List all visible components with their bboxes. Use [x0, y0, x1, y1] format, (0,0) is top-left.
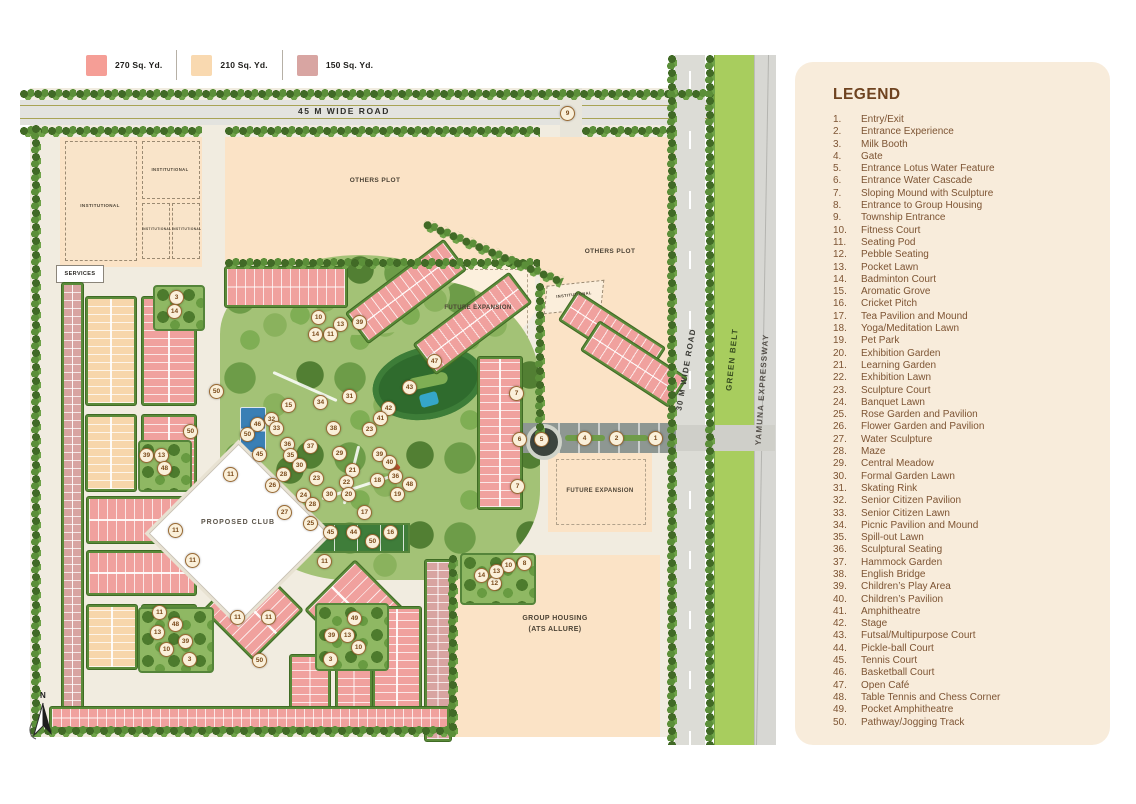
map-marker: 11: [185, 553, 200, 568]
legend-item-number: 11.: [833, 237, 861, 249]
plot-size-legend-item: 150 Sq. Yd.: [282, 50, 387, 80]
legend-item-label: Entry/Exit: [861, 114, 1098, 126]
site-plan-page: 270 Sq. Yd. 210 Sq. Yd. 150 Sq. Yd. 45 M…: [0, 0, 1136, 804]
map-marker: 11: [261, 610, 276, 625]
legend-item: 35. Spill-out Lawn: [833, 532, 1098, 544]
legend-item-number: 9.: [833, 212, 861, 224]
plot-size-swatch: [191, 55, 212, 76]
map-marker: 34: [313, 395, 328, 410]
legend-list: 1. Entry/Exit 2. Entrance Experience 3. …: [795, 114, 1110, 729]
legend-item: 24. Banquet Lawn: [833, 397, 1098, 409]
legend-item-label: Aromatic Grove: [861, 286, 1098, 298]
legend-item-label: Pocket Lawn: [861, 262, 1098, 274]
map-marker: 27: [277, 505, 292, 520]
legend-item-number: 31.: [833, 483, 861, 495]
legend-panel: LEGEND 1. Entry/Exit 2. Entrance Experie…: [795, 62, 1110, 745]
legend-item-label: Entrance to Group Housing: [861, 200, 1098, 212]
map-marker: 3: [169, 290, 184, 305]
plot-size-legend-item: 270 Sq. Yd.: [86, 50, 176, 80]
map-marker: 25: [303, 516, 318, 531]
legend-item-number: 41.: [833, 606, 861, 618]
legend-item-label: Milk Booth: [861, 139, 1098, 151]
plot-size-swatch: [86, 55, 107, 76]
legend-item-number: 45.: [833, 655, 861, 667]
legend-item: 47. Open Café: [833, 680, 1098, 692]
legend-item-label: Skating Rink: [861, 483, 1098, 495]
legend-item: 2. Entrance Experience: [833, 126, 1098, 138]
plot-size-legend-item: 210 Sq. Yd.: [176, 50, 281, 80]
legend-item-label: Basketball Court: [861, 667, 1098, 679]
map-marker: 7: [510, 479, 525, 494]
legend-item-label: Formal Garden Lawn: [861, 471, 1098, 483]
map-marker: 11: [223, 467, 238, 482]
map-marker: 11: [230, 610, 245, 625]
legend-item: 7. Sloping Mound with Sculpture: [833, 188, 1098, 200]
map-marker: 44: [346, 525, 361, 540]
plot-size-label: 150 Sq. Yd.: [326, 60, 373, 70]
legend-item: 22. Exhibition Lawn: [833, 372, 1098, 384]
legend-item: 34. Picnic Pavilion and Mound: [833, 520, 1098, 532]
map-marker: 16: [383, 525, 398, 540]
map-marker: 14: [308, 327, 323, 342]
legend-item: 11. Seating Pod: [833, 237, 1098, 249]
map-marker: 43: [402, 380, 417, 395]
legend-item-number: 17.: [833, 311, 861, 323]
legend-item-label: Badminton Court: [861, 274, 1098, 286]
legend-item-number: 14.: [833, 274, 861, 286]
legend-item-label: Sculptural Seating: [861, 544, 1098, 556]
legend-item: 26. Flower Garden and Pavilion: [833, 421, 1098, 433]
marker-layer: 1245677981012131410133911144743424131341…: [20, 55, 775, 745]
legend-item-label: Futsal/Multipurpose Court: [861, 630, 1098, 642]
map-marker: 15: [281, 398, 296, 413]
legend-item-number: 40.: [833, 594, 861, 606]
plot-size-swatch: [297, 55, 318, 76]
legend-item: 38. English Bridge: [833, 569, 1098, 581]
map-marker: 5: [534, 432, 549, 447]
map-marker: 31: [342, 389, 357, 404]
legend-item-number: 25.: [833, 409, 861, 421]
map-marker: 37: [303, 439, 318, 454]
legend-item: 5. Entrance Lotus Water Feature: [833, 163, 1098, 175]
legend-item-number: 26.: [833, 421, 861, 433]
legend-item: 18. Yoga/Meditation Lawn: [833, 323, 1098, 335]
master-plan-map: 45 M WIDE ROAD 30 M WIDE ROAD GREEN BELT…: [20, 55, 775, 745]
legend-item-number: 23.: [833, 385, 861, 397]
legend-item: 50. Pathway/Jogging Track: [833, 717, 1098, 729]
legend-item-number: 1.: [833, 114, 861, 126]
map-marker: 23: [309, 471, 324, 486]
legend-item-number: 21.: [833, 360, 861, 372]
map-marker: 29: [332, 446, 347, 461]
map-marker: 50: [183, 424, 198, 439]
map-marker: 6: [512, 432, 527, 447]
legend-item: 12. Pebble Seating: [833, 249, 1098, 261]
map-marker: 28: [305, 497, 320, 512]
legend-item-label: Rose Garden and Pavilion: [861, 409, 1098, 421]
map-marker: 4: [577, 431, 592, 446]
legend-item: 45. Tennis Court: [833, 655, 1098, 667]
legend-item-label: Pet Park: [861, 335, 1098, 347]
map-marker: 50: [209, 384, 224, 399]
legend-item-label: Spill-out Lawn: [861, 532, 1098, 544]
legend-item-number: 29.: [833, 458, 861, 470]
legend-item-label: Fitness Court: [861, 225, 1098, 237]
legend-item-label: Pickle-ball Court: [861, 643, 1098, 655]
legend-item-number: 8.: [833, 200, 861, 212]
legend-item-label: Entrance Experience: [861, 126, 1098, 138]
map-marker: 39: [352, 315, 367, 330]
map-marker: 33: [269, 421, 284, 436]
legend-item: 43. Futsal/Multipurpose Court: [833, 630, 1098, 642]
plot-size-label: 270 Sq. Yd.: [115, 60, 162, 70]
map-marker: 14: [474, 568, 489, 583]
legend-item-number: 22.: [833, 372, 861, 384]
map-marker: 3: [323, 652, 338, 667]
legend-item-number: 37.: [833, 557, 861, 569]
map-marker: 17: [357, 505, 372, 520]
map-marker: 10: [311, 310, 326, 325]
map-marker: 48: [157, 461, 172, 476]
legend-item: 10. Fitness Court: [833, 225, 1098, 237]
map-marker: 10: [351, 640, 366, 655]
map-marker: 18: [370, 473, 385, 488]
legend-item-number: 10.: [833, 225, 861, 237]
legend-item-number: 5.: [833, 163, 861, 175]
legend-item: 19. Pet Park: [833, 335, 1098, 347]
legend-item-number: 50.: [833, 717, 861, 729]
map-marker: 19: [390, 487, 405, 502]
legend-item-label: Sculpture Court: [861, 385, 1098, 397]
map-marker: 13: [150, 625, 165, 640]
legend-item-label: Tea Pavilion and Mound: [861, 311, 1098, 323]
map-marker: 49: [347, 611, 362, 626]
compass-arrow-icon: [24, 693, 64, 743]
legend-item-number: 48.: [833, 692, 861, 704]
map-marker: 7: [509, 386, 524, 401]
legend-item: 32. Senior Citizen Pavilion: [833, 495, 1098, 507]
legend-item: 49. Pocket Amphitheatre: [833, 704, 1098, 716]
legend-item-label: Central Meadow: [861, 458, 1098, 470]
legend-item-label: Township Entrance: [861, 212, 1098, 224]
legend-item-number: 12.: [833, 249, 861, 261]
legend-item: 15. Aromatic Grove: [833, 286, 1098, 298]
map-marker: 10: [159, 642, 174, 657]
map-marker: 8: [517, 556, 532, 571]
legend-item: 28. Maze: [833, 446, 1098, 458]
legend-item-number: 27.: [833, 434, 861, 446]
map-marker: 47: [427, 354, 442, 369]
map-marker: 9: [560, 106, 575, 121]
legend-item: 30. Formal Garden Lawn: [833, 471, 1098, 483]
legend-item-label: Senior Citizen Lawn: [861, 508, 1098, 520]
legend-item-number: 46.: [833, 667, 861, 679]
legend-item-number: 30.: [833, 471, 861, 483]
map-marker: 50: [252, 653, 267, 668]
map-marker: 40: [382, 455, 397, 470]
legend-item-label: Gate: [861, 151, 1098, 163]
legend-item-label: Pebble Seating: [861, 249, 1098, 261]
legend-item-number: 6.: [833, 175, 861, 187]
legend-item-label: Entrance Water Cascade: [861, 175, 1098, 187]
legend-item: 16. Cricket Pitch: [833, 298, 1098, 310]
map-marker: 20: [341, 487, 356, 502]
map-marker: 48: [402, 477, 417, 492]
legend-item-label: Amphitheatre: [861, 606, 1098, 618]
legend-item: 48. Table Tennis and Chess Corner: [833, 692, 1098, 704]
map-marker: 14: [167, 304, 182, 319]
map-marker: 11: [152, 605, 167, 620]
legend-item-label: Learning Garden: [861, 360, 1098, 372]
legend-item: 31. Skating Rink: [833, 483, 1098, 495]
legend-item-number: 38.: [833, 569, 861, 581]
map-marker: 45: [252, 447, 267, 462]
legend-item-number: 4.: [833, 151, 861, 163]
legend-item-label: Pathway/Jogging Track: [861, 717, 1098, 729]
map-marker: 3: [182, 652, 197, 667]
legend-item-number: 19.: [833, 335, 861, 347]
legend-item-label: Tennis Court: [861, 655, 1098, 667]
map-marker: 11: [317, 554, 332, 569]
map-marker: 30: [322, 487, 337, 502]
legend-item: 3. Milk Booth: [833, 139, 1098, 151]
legend-item: 37. Hammock Garden: [833, 557, 1098, 569]
map-marker: 39: [324, 628, 339, 643]
legend-item-label: Water Sculpture: [861, 434, 1098, 446]
legend-item-label: Exhibition Lawn: [861, 372, 1098, 384]
legend-item-label: Hammock Garden: [861, 557, 1098, 569]
plot-size-legend: 270 Sq. Yd. 210 Sq. Yd. 150 Sq. Yd.: [86, 50, 387, 80]
map-marker: 30: [292, 458, 307, 473]
map-marker: 38: [326, 421, 341, 436]
legend-item-number: 16.: [833, 298, 861, 310]
legend-item-label: English Bridge: [861, 569, 1098, 581]
legend-item-label: Picnic Pavilion and Mound: [861, 520, 1098, 532]
legend-item-label: Seating Pod: [861, 237, 1098, 249]
legend-item: 42. Stage: [833, 618, 1098, 630]
legend-item-label: Maze: [861, 446, 1098, 458]
legend-item-number: 18.: [833, 323, 861, 335]
legend-item: 25. Rose Garden and Pavilion: [833, 409, 1098, 421]
map-marker: 45: [323, 525, 338, 540]
legend-item-number: 39.: [833, 581, 861, 593]
legend-item: 8. Entrance to Group Housing: [833, 200, 1098, 212]
legend-item: 33. Senior Citizen Lawn: [833, 508, 1098, 520]
map-marker: 11: [168, 523, 183, 538]
legend-item-number: 49.: [833, 704, 861, 716]
legend-item-number: 24.: [833, 397, 861, 409]
legend-item: 27. Water Sculpture: [833, 434, 1098, 446]
legend-item-label: Banquet Lawn: [861, 397, 1098, 409]
legend-item-label: Table Tennis and Chess Corner: [861, 692, 1098, 704]
legend-item-number: 32.: [833, 495, 861, 507]
legend-item-number: 15.: [833, 286, 861, 298]
legend-item-label: Exhibition Garden: [861, 348, 1098, 360]
legend-item: 14. Badminton Court: [833, 274, 1098, 286]
legend-item-label: Pocket Amphitheatre: [861, 704, 1098, 716]
legend-item-label: Senior Citizen Pavilion: [861, 495, 1098, 507]
legend-item-number: 43.: [833, 630, 861, 642]
legend-item-number: 3.: [833, 139, 861, 151]
legend-item: 36. Sculptural Seating: [833, 544, 1098, 556]
map-marker: 11: [323, 327, 338, 342]
map-marker: 39: [178, 634, 193, 649]
legend-item-number: 34.: [833, 520, 861, 532]
legend-item: 29. Central Meadow: [833, 458, 1098, 470]
legend-item: 46. Basketball Court: [833, 667, 1098, 679]
map-marker: 48: [168, 617, 183, 632]
legend-item-number: 35.: [833, 532, 861, 544]
legend-title: LEGEND: [833, 86, 1110, 104]
legend-item: 44. Pickle-ball Court: [833, 643, 1098, 655]
legend-item-number: 13.: [833, 262, 861, 274]
legend-item-number: 28.: [833, 446, 861, 458]
legend-item-number: 44.: [833, 643, 861, 655]
map-marker: 50: [240, 427, 255, 442]
legend-item: 41. Amphitheatre: [833, 606, 1098, 618]
map-marker: 26: [265, 478, 280, 493]
legend-item-label: Yoga/Meditation Lawn: [861, 323, 1098, 335]
legend-item: 17. Tea Pavilion and Mound: [833, 311, 1098, 323]
legend-item: 39. Children’s Play Area: [833, 581, 1098, 593]
map-marker: 39: [139, 448, 154, 463]
legend-item: 4. Gate: [833, 151, 1098, 163]
plot-size-label: 210 Sq. Yd.: [220, 60, 267, 70]
map-marker: 2: [609, 431, 624, 446]
legend-item-label: Cricket Pitch: [861, 298, 1098, 310]
legend-item-label: Children’s Play Area: [861, 581, 1098, 593]
legend-item-label: Flower Garden and Pavilion: [861, 421, 1098, 433]
legend-item-label: Stage: [861, 618, 1098, 630]
legend-item-label: Open Café: [861, 680, 1098, 692]
legend-item: 1. Entry/Exit: [833, 114, 1098, 126]
legend-item: 40. Children’s Pavilion: [833, 594, 1098, 606]
legend-item: 13. Pocket Lawn: [833, 262, 1098, 274]
map-marker: 50: [365, 534, 380, 549]
legend-item-number: 7.: [833, 188, 861, 200]
legend-item-number: 20.: [833, 348, 861, 360]
legend-item-number: 36.: [833, 544, 861, 556]
legend-item-label: Children’s Pavilion: [861, 594, 1098, 606]
north-compass: N: [24, 693, 64, 743]
map-marker: 13: [489, 564, 504, 579]
legend-item: 23. Sculpture Court: [833, 385, 1098, 397]
legend-item: 9. Township Entrance: [833, 212, 1098, 224]
legend-item-label: Entrance Lotus Water Feature: [861, 163, 1098, 175]
legend-item: 20. Exhibition Garden: [833, 348, 1098, 360]
map-marker: 1: [648, 431, 663, 446]
legend-item-number: 33.: [833, 508, 861, 520]
legend-item: 21. Learning Garden: [833, 360, 1098, 372]
legend-item-label: Sloping Mound with Sculpture: [861, 188, 1098, 200]
legend-item-number: 42.: [833, 618, 861, 630]
map-marker: 23: [362, 422, 377, 437]
legend-item-number: 2.: [833, 126, 861, 138]
legend-item-number: 47.: [833, 680, 861, 692]
legend-item: 6. Entrance Water Cascade: [833, 175, 1098, 187]
map-marker: 36: [388, 469, 403, 484]
